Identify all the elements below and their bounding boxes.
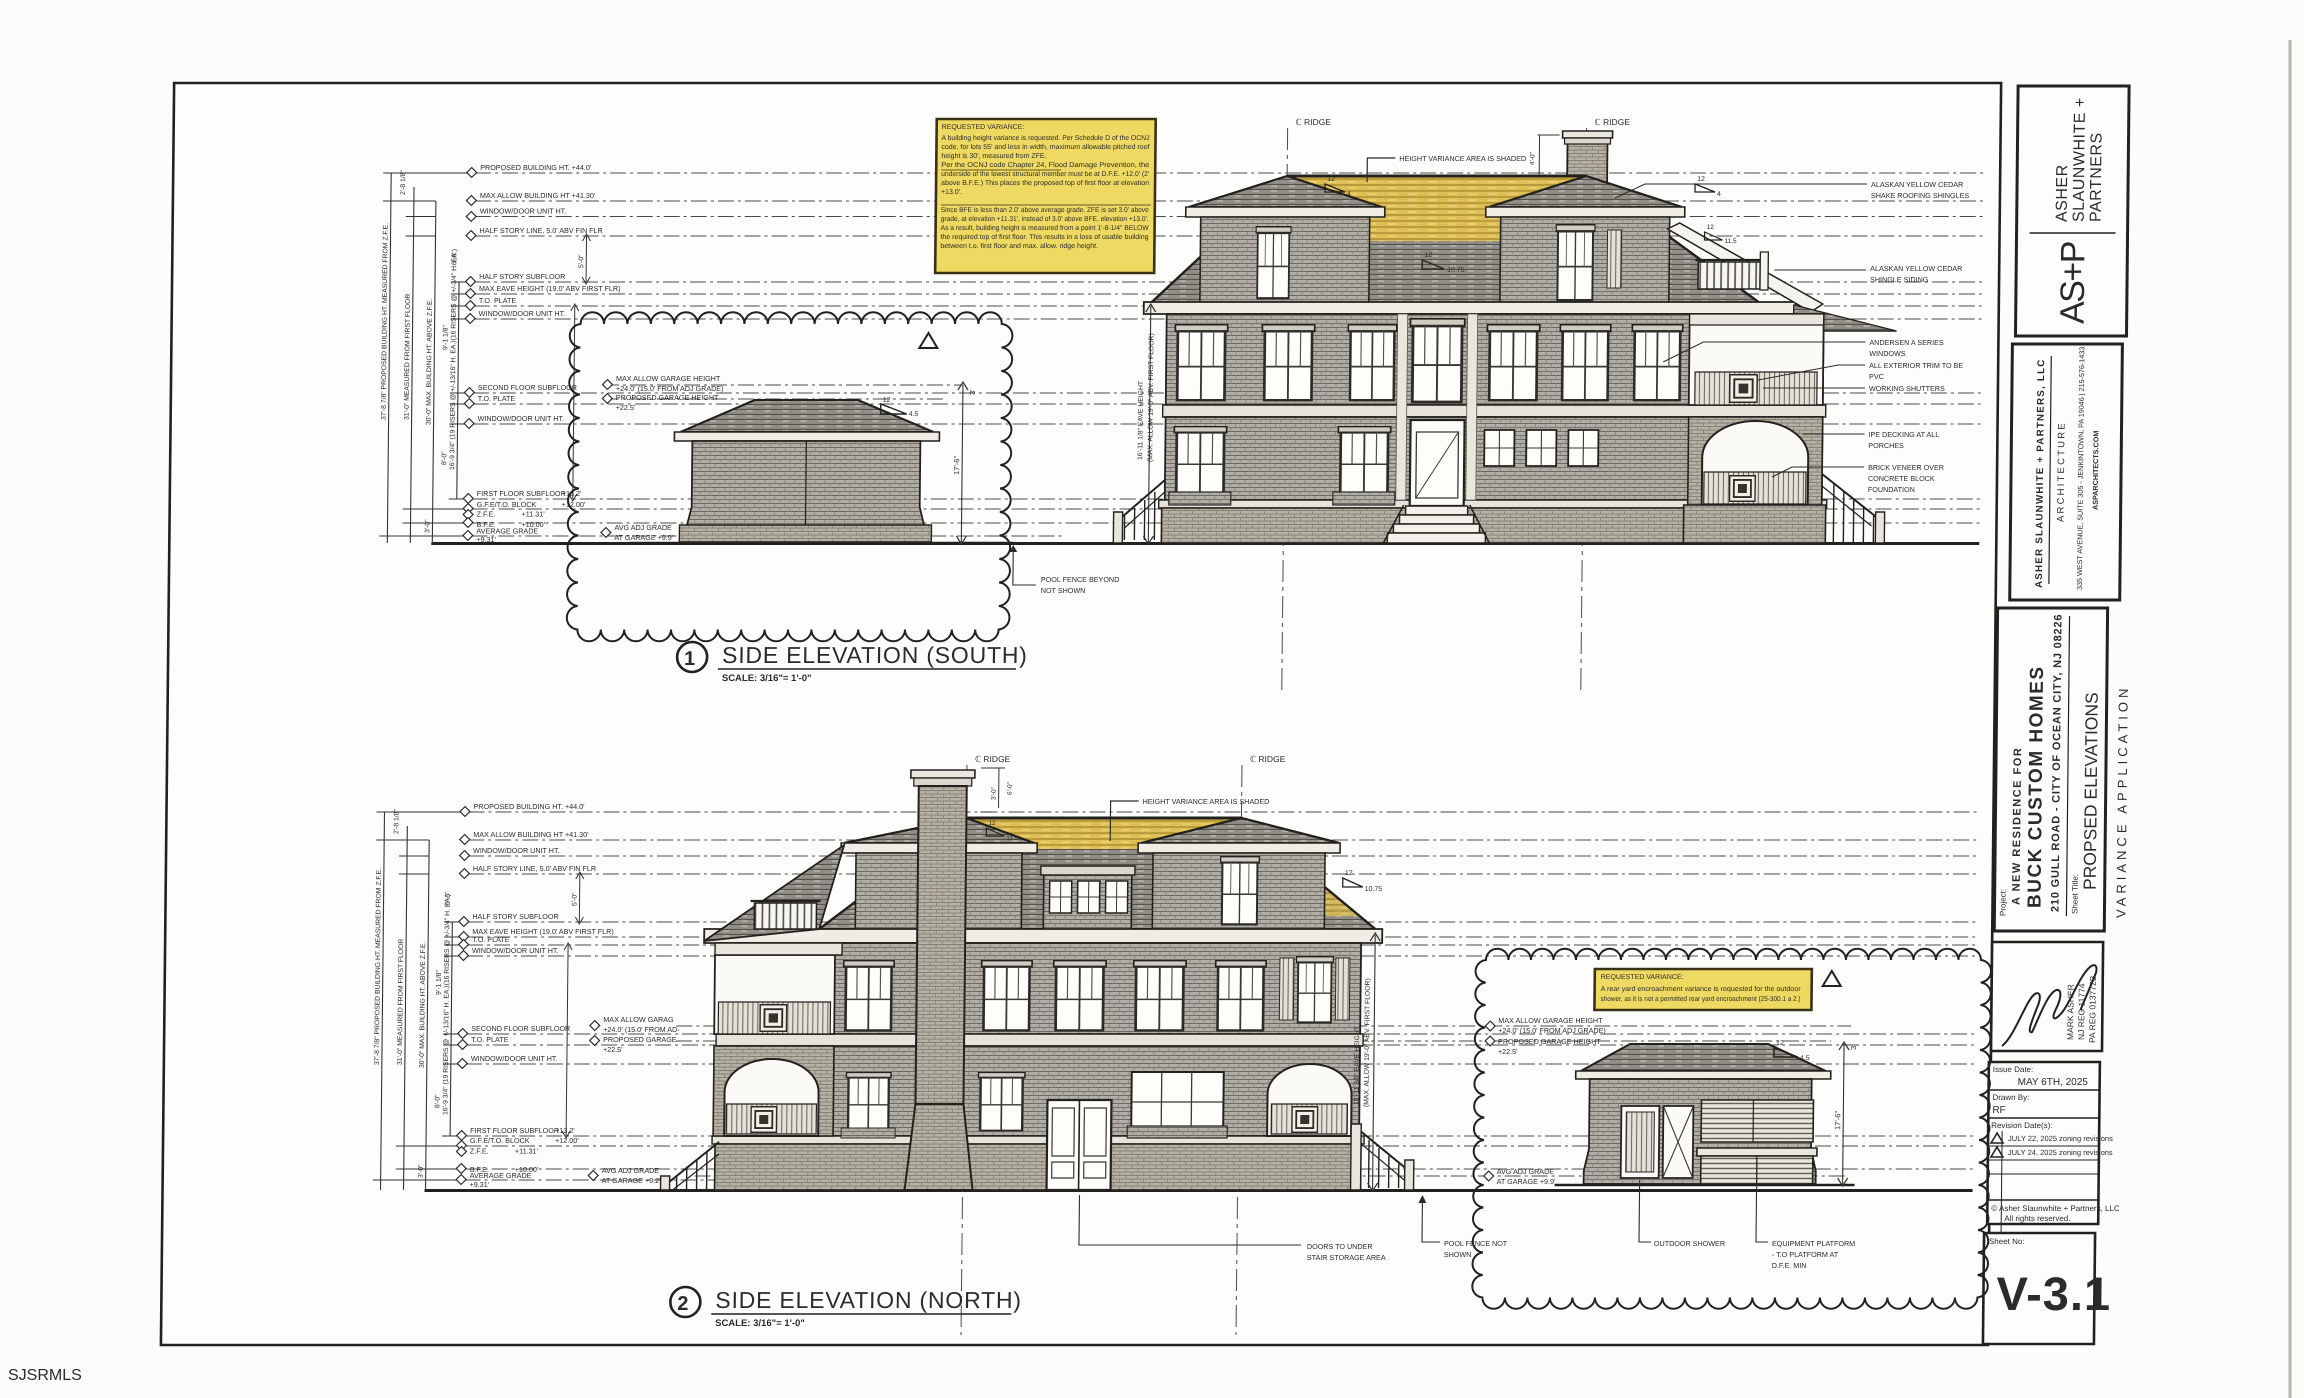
svg-text:AT GARAGE +9.2': AT GARAGE +9.2' [602,1176,662,1185]
svg-text:1: 1 [684,648,695,670]
svg-text:SHINGLE SIDING: SHINGLE SIDING [1870,275,1929,284]
svg-text:ASPARCHITECTS.COM: ASPARCHITECTS.COM [2091,431,2101,510]
svg-text:+12.00': +12.00' [555,1136,579,1145]
svg-text:6'-6": 6'-6" [445,891,452,905]
svg-text:Sheet No:: Sheet No: [1989,1237,2025,1246]
svg-text:PROPOSED GARAGE HEIGHT: PROPOSED GARAGE HEIGHT [1498,1037,1601,1046]
svg-text:11.5: 11.5 [1006,835,1019,842]
svg-text:18'-11 3/8" EAVE HEIGHT: 18'-11 3/8" EAVE HEIGHT [1353,1026,1361,1105]
svg-text:ARCHITECTURE: ARCHITECTURE [2056,421,2068,522]
svg-text:CONCRETE BLOCK: CONCRETE BLOCK [1868,474,1935,483]
svg-text:JULY 22, 2025 zoning revisions: JULY 22, 2025 zoning revisions [2008,1134,2113,1143]
svg-text:11.5: 11.5 [1724,238,1737,245]
svg-text:AVERAGE GRADE: AVERAGE GRADE [470,1171,532,1180]
svg-text:NOT SHOWN: NOT SHOWN [1041,586,1086,595]
svg-text:AT GARAGE +9.9': AT GARAGE +9.9' [1497,1177,1557,1186]
svg-text:HEIGHT VARIANCE AREA IS SHADED: HEIGHT VARIANCE AREA IS SHADED [1143,797,1270,806]
svg-text:30'-0" MAX. BUILDING HT. ABOVE: 30'-0" MAX. BUILDING HT. ABOVE Z.F.E. [419,941,427,1068]
svg-text:12: 12 [1327,176,1335,183]
svg-text:SHAKE ROOFING SHINGLES: SHAKE ROOFING SHINGLES [1871,191,1970,200]
svg-text:WINDOW/DOOR UNIT HT.: WINDOW/DOOR UNIT HT. [473,846,560,855]
svg-text:2'-8 1/8": 2'-8 1/8" [393,809,400,834]
svg-text:OUTDOOR SHOWER: OUTDOOR SHOWER [1654,1239,1725,1248]
svg-text:ALL EXTERIOR TRIM TO BE: ALL EXTERIOR TRIM TO BE [1869,361,1963,370]
svg-text:ALASKAN YELLOW CEDAR: ALASKAN YELLOW CEDAR [1870,264,1962,273]
svg-text:PROPOSED GARAGE HEIGHT: PROPOSED GARAGE HEIGHT [616,393,719,402]
svg-text:SJSRMLS: SJSRMLS [8,1367,82,1384]
svg-text:12: 12 [1424,252,1432,259]
svg-text:above B.F.E.) This places the: above B.F.E.) This places the proposed t… [941,180,1149,187]
svg-text:REQUESTED VARIANCE:: REQUESTED VARIANCE: [1601,974,1684,981]
svg-text:2: 2 [677,1293,688,1315]
svg-text:Project:: Project: [1998,889,2007,916]
svg-text:ℂ RIDGE: ℂ RIDGE [1250,754,1286,764]
svg-text:Revision Date(s):: Revision Date(s): [1991,1121,2052,1130]
svg-text:PA REG 013772B: PA REG 013772B [2087,975,2098,1043]
svg-text:POOL FENCE NOT: POOL FENCE NOT [1444,1239,1508,1248]
svg-text:code, for lots 55' and less in: code, for lots 55' and less in width, ma… [941,144,1149,151]
svg-text:Sheet Title:: Sheet Title: [2070,874,2079,914]
svg-text:V-3.1: V-3.1 [1996,1267,2111,1320]
svg-text:+24.0' (15.0' FROM ADJ GRADE): +24.0' (15.0' FROM ADJ GRADE) [1498,1026,1606,1035]
svg-text:+13.2': +13.2' [555,1126,575,1135]
svg-text:16'-11 1/8" EAVE HEIGHT: 16'-11 1/8" EAVE HEIGHT [1137,381,1145,460]
svg-text:31'-0" MEASURED FROM FIRST FLO: 31'-0" MEASURED FROM FIRST FLOOR [397,939,405,1065]
svg-text:SCALE: 3/16"= 1'-0": SCALE: 3/16"= 1'-0" [715,1318,805,1329]
svg-text:AT GARAGE +9.9': AT GARAGE +9.9' [614,533,674,542]
svg-text:AVG ADJ GRADE: AVG ADJ GRADE [614,523,672,532]
svg-text:STAIR STORAGE AREA: STAIR STORAGE AREA [1307,1253,1386,1262]
svg-text:+22.5': +22.5' [1498,1047,1518,1056]
svg-text:Drawn By:: Drawn By: [1992,1093,2029,1102]
svg-text:T.O. PLATE: T.O. PLATE [471,1035,509,1044]
svg-text:VARIANCE APPLICATION: VARIANCE APPLICATION [2113,685,2130,918]
svg-text:9'-1 1/8": 9'-1 1/8" [436,970,443,995]
svg-text:G.F.E/T.O. BLOCK: G.F.E/T.O. BLOCK [477,500,537,509]
svg-text:+22.5': +22.5' [603,1045,623,1054]
svg-text:PARTNERS: PARTNERS [2088,132,2106,222]
svg-text:height is 30', measured from Z: height is 30', measured from ZFE. [941,153,1046,160]
svg-text:RF: RF [1992,1105,2005,1116]
svg-text:MAX ALLOW BUILDING HT +41.30': MAX ALLOW BUILDING HT +41.30' [480,191,596,200]
svg-text:10.75: 10.75 [1447,267,1465,274]
svg-text:3': 3' [1849,1044,1858,1050]
svg-text:A rear yard encroachment varia: A rear yard encroachment variance is req… [1601,986,1802,993]
svg-text:+11.31': +11.31' [522,510,546,519]
svg-text:PROPOSED BUILDING HT. +44.0': PROPOSED BUILDING HT. +44.0' [480,163,592,172]
svg-text:12: 12 [1345,870,1353,877]
svg-text:BUCK CUSTOM HOMES: BUCK CUSTOM HOMES [2024,665,2048,908]
svg-text:MAY 6TH, 2025: MAY 6TH, 2025 [2018,1077,2089,1088]
svg-text:HALF STORY LINE, 5.0' ABV FIN: HALF STORY LINE, 5.0' ABV FIN FLR [480,226,603,235]
svg-text:8'-0": 8'-0" [441,451,448,465]
svg-text:ℂ RIDGE: ℂ RIDGE [975,754,1011,764]
svg-text:ALASKAN YELLOW CEDAR: ALASKAN YELLOW CEDAR [1871,180,1963,189]
svg-text:MAX ALLOW BUILDING HT +41.30': MAX ALLOW BUILDING HT +41.30' [473,830,589,839]
svg-text:+24.0' (15.0' FROM AD-: +24.0' (15.0' FROM AD- [603,1025,680,1034]
svg-text:SECOND FLOOR SUBFLOOR: SECOND FLOOR SUBFLOOR [478,383,577,392]
svg-text:WINDOW/DOOR UNIT HT.: WINDOW/DOOR UNIT HT. [480,207,567,216]
svg-text:T.O. PLATE: T.O. PLATE [479,296,517,305]
svg-text:9'-1 1/8": 9'-1 1/8" [442,325,449,350]
svg-text:grade, at elevation +11.31', i: grade, at elevation +11.31', instead of … [941,216,1149,223]
svg-text:MAX ALLOW GARAGE HEIGHT: MAX ALLOW GARAGE HEIGHT [616,374,721,383]
svg-text:IPE DECKING AT ALL: IPE DECKING AT ALL [1868,430,1939,439]
svg-text:+22.5': +22.5' [616,403,636,412]
svg-text:(MAX. ALLOW 19'-0" ABV. FIRST: (MAX. ALLOW 19'-0" ABV. FIRST FLOOR) [1363,978,1371,1107]
svg-text:AVG ADJ GRADE: AVG ADJ GRADE [1497,1167,1555,1176]
svg-text:underside of the lowest struct: underside of the lowest structural membe… [941,171,1149,178]
svg-text:Per the OCNJ code Chapter 24,: Per the OCNJ code Chapter 24, Flood Dama… [941,162,1149,169]
svg-text:PVC: PVC [1869,372,1884,381]
svg-text:PROPOSED BUILDING HT. +44.0': PROPOSED BUILDING HT. +44.0' [474,802,586,811]
svg-text:ASHER: ASHER [2054,164,2072,222]
svg-text:A building height variance is: A building height variance is requested.… [942,135,1150,142]
svg-text:+24.0' (15.0' FROM ADJ GRADE): +24.0' (15.0' FROM ADJ GRADE) [616,384,724,393]
svg-text:the required top of first floo: the required top of first floor. This re… [940,234,1148,241]
svg-text:5'-0": 5'-0" [572,892,579,906]
svg-text:PORCHES: PORCHES [1868,441,1904,450]
svg-text:G.F.E/T.O. BLOCK: G.F.E/T.O. BLOCK [470,1136,530,1145]
svg-text:HALF STORY LINE, 5.0' ABV FIN: HALF STORY LINE, 5.0' ABV FIN FLR [473,864,596,873]
svg-text:WINDOW/DOOR UNIT HT.: WINDOW/DOOR UNIT HT. [471,1054,558,1063]
svg-text:MAX ALLOW GARAGE HEIGHT: MAX ALLOW GARAGE HEIGHT [1498,1016,1603,1025]
svg-text:+11.31': +11.31' [515,1147,539,1156]
svg-text:31'-0" MEASURED FROM FIRST FLO: 31'-0" MEASURED FROM FIRST FLOOR [404,294,412,420]
svg-text:3': 3' [968,389,977,395]
svg-text:4: 4 [1347,191,1351,198]
svg-text:MAX EAVE HEIGHT (19.0' ABV FIR: MAX EAVE HEIGHT (19.0' ABV FIRST FLR) [479,284,621,293]
svg-text:NJ REG 11774: NJ REG 11774 [2076,983,2087,1040]
svg-text:REQUESTED VARIANCE:: REQUESTED VARIANCE: [942,124,1025,131]
svg-text:SHOWN: SHOWN [1444,1250,1472,1259]
svg-text:WORKING SHUTTERS: WORKING SHUTTERS [1869,384,1945,393]
svg-text:HALF STORY SUBFLOOR: HALF STORY SUBFLOOR [472,912,558,921]
svg-text:17'-6": 17'-6" [1833,1111,1842,1130]
svg-text:4.5: 4.5 [1800,1055,1810,1062]
svg-text:FIRST FLOOR SUBFLOOR: FIRST FLOOR SUBFLOOR [470,1126,559,1135]
svg-text:2'-8 1/8": 2'-8 1/8" [400,170,407,195]
svg-text:8'-0": 8'-0" [434,1094,441,1108]
svg-text:+9.31': +9.31' [476,535,496,544]
svg-text:SIDE ELEVATION (NORTH): SIDE ELEVATION (NORTH) [715,1287,1022,1313]
svg-text:WINDOW/DOOR UNIT HT.: WINDOW/DOOR UNIT HT. [478,414,565,423]
svg-text:10.75: 10.75 [1365,886,1383,893]
svg-text:WINDOW/DOOR UNIT HT.: WINDOW/DOOR UNIT HT. [479,309,566,318]
svg-text:T.O. PLATE: T.O. PLATE [472,935,510,944]
svg-text:- T.O PLATFORM AT: - T.O PLATFORM AT [1772,1250,1839,1259]
svg-text:AS+P: AS+P [2054,242,2093,324]
svg-text:3'-0": 3'-0" [418,1164,425,1178]
svg-text:JULY 24, 2025 zoning revisions: JULY 24, 2025 zoning revisions [2008,1148,2113,1157]
svg-text:All rights reserved.: All rights reserved. [2004,1214,2070,1223]
svg-text:Issue Date:: Issue Date: [1993,1065,2034,1074]
svg-text:ANDERSEN A SERIES: ANDERSEN A SERIES [1869,338,1944,347]
svg-text:SCALE: 3/16"= 1'-0": SCALE: 3/16"= 1'-0" [722,673,812,684]
svg-text:5'-0": 5'-0" [578,254,585,268]
svg-text:As a result, building height i: As a result, building height is measured… [941,225,1149,232]
svg-text:+12.00': +12.00' [562,500,586,509]
svg-text:WINDOWS: WINDOWS [1869,349,1906,358]
svg-text:12: 12 [1697,176,1705,183]
svg-text:6'-6": 6'-6" [451,251,458,265]
svg-text:FOUNDATION: FOUNDATION [1868,485,1915,494]
svg-text:4.5: 4.5 [909,411,919,418]
svg-text:Since BFE is less than 2.0' ab: Since BFE is less than 2.0' above averag… [941,207,1149,214]
svg-text:SECOND FLOOR SUBFLOOR: SECOND FLOOR SUBFLOOR [471,1024,570,1033]
svg-text:AVG ADJ GRADE: AVG ADJ GRADE [602,1166,660,1175]
svg-text:between t.o. first floor and m: between t.o. first floor and max. allow.… [940,243,1098,250]
svg-text:WINDOW/DOOR UNIT HT.: WINDOW/DOOR UNIT HT. [472,946,559,955]
svg-text:A NEW RESIDENCE FOR: A NEW RESIDENCE FOR [2011,747,2025,905]
svg-text:FIRST FLOOR SUBFLOOR: FIRST FLOOR SUBFLOOR [477,489,566,498]
svg-text:Z.F.E.: Z.F.E. [477,510,496,519]
svg-text:17'-6": 17'-6" [952,456,961,475]
svg-text:T.O. PLATE: T.O. PLATE [478,394,516,403]
svg-text:Z.F.E.: Z.F.E. [470,1147,489,1156]
svg-text:6'-0": 6'-0" [1007,781,1014,795]
svg-text:SIDE ELEVATION (SOUTH): SIDE ELEVATION (SOUTH) [722,642,1028,668]
svg-text:MARK ASHER: MARK ASHER [2065,984,2076,1040]
svg-text:shower, as it is not a permitt: shower, as it is not a permitted rear ya… [1600,996,1800,1003]
svg-text:4'-0": 4'-0" [1529,151,1536,165]
svg-text:ℂ RIDGE: ℂ RIDGE [1296,117,1332,127]
svg-text:12: 12 [883,397,891,404]
svg-text:30'-0" MAX. BUILDING HT. ABOVE: 30'-0" MAX. BUILDING HT. ABOVE Z.F.E. [426,298,434,425]
svg-text:SLAUNWHITE +: SLAUNWHITE + [2071,97,2089,222]
svg-text:BRICK VENEER OVER: BRICK VENEER OVER [1868,463,1944,472]
svg-text:+13.0'.: +13.0'. [941,189,962,196]
svg-text:12: 12 [1776,1040,1784,1047]
svg-text:PROPOSED GARAGE: PROPOSED GARAGE [603,1035,677,1044]
svg-text:POOL FENCE BEYOND: POOL FENCE BEYOND [1041,575,1120,584]
svg-text:HEIGHT VARIANCE AREA IS SHADED: HEIGHT VARIANCE AREA IS SHADED [1399,154,1526,163]
svg-text:12: 12 [1707,224,1715,231]
svg-text:4: 4 [1717,191,1721,198]
svg-text:(MAX. ALLOW 19'-0" ABV. FIRST: (MAX. ALLOW 19'-0" ABV. FIRST FLOOR) [1147,333,1155,462]
svg-text:3'-0": 3'-0" [991,786,998,800]
svg-text:+9.31': +9.31' [470,1180,490,1189]
svg-text:© Asher Slaunwhite + Partners,: © Asher Slaunwhite + Partners, LLC [1991,1204,2120,1213]
svg-text:D.F.E. MIN: D.F.E. MIN [1772,1261,1807,1270]
svg-text:EQUIPMENT PLATFORM: EQUIPMENT PLATFORM [1772,1239,1855,1248]
svg-text:ℂ RIDGE: ℂ RIDGE [1595,117,1631,127]
svg-text:12: 12 [988,820,996,827]
svg-text:DOORS TO UNDER: DOORS TO UNDER [1307,1242,1373,1251]
svg-text:PROPSED ELEVATIONS: PROPSED ELEVATIONS [2080,692,2102,890]
svg-text:3'-0": 3'-0" [424,519,431,533]
svg-text:HALF STORY SUBFLOOR: HALF STORY SUBFLOOR [479,272,565,281]
svg-text:MAX ALLOW GARAG: MAX ALLOW GARAG [603,1015,674,1024]
